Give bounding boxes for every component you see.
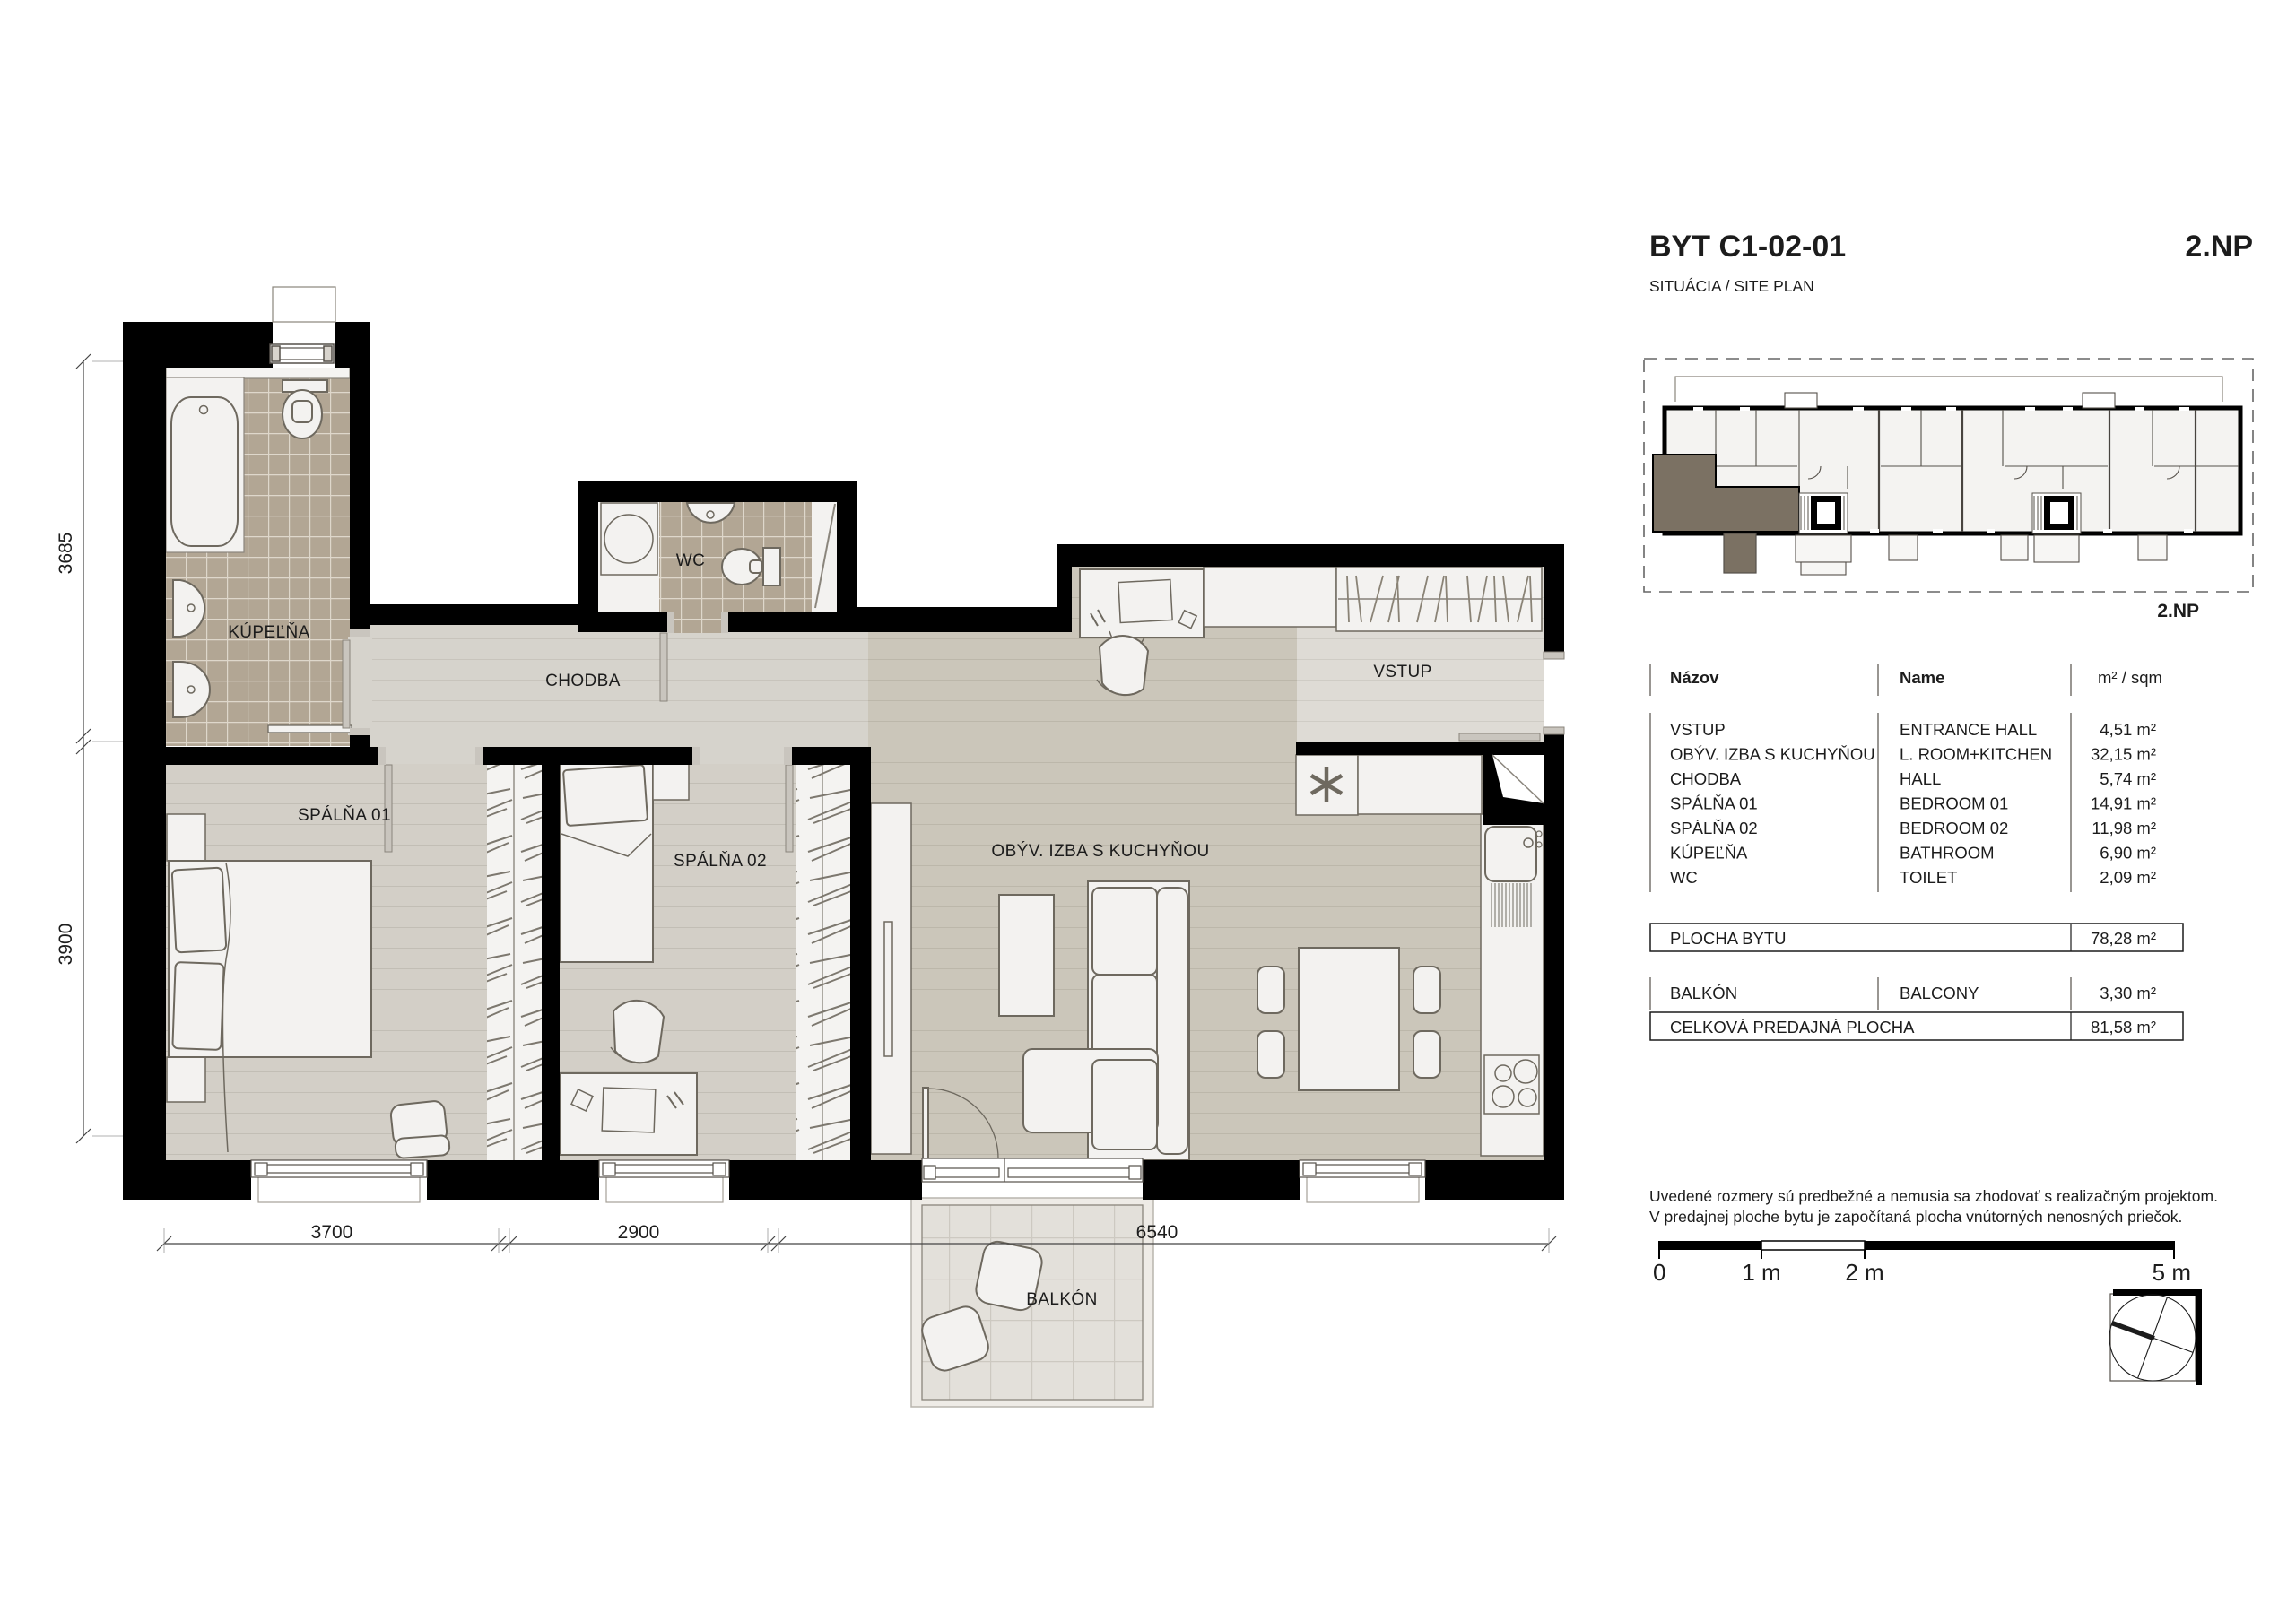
svg-text:SPÁLŇA 01: SPÁLŇA 01: [298, 805, 391, 825]
svg-text:PLOCHA BYTU: PLOCHA BYTU: [1670, 929, 1787, 948]
svg-text:BYT C1-02-01: BYT C1-02-01: [1649, 230, 1846, 264]
svg-text:3,30 m²: 3,30 m²: [2100, 984, 2156, 1002]
svg-text:VSTUP: VSTUP: [1373, 663, 1431, 681]
svg-text:81,58 m²: 81,58 m²: [2091, 1018, 2156, 1037]
svg-text:BEDROOM 02: BEDROOM 02: [1900, 819, 2008, 837]
svg-text:OBÝV. IZBA S KUCHYŇOU: OBÝV. IZBA S KUCHYŇOU: [991, 841, 1209, 861]
svg-text:78,28 m²: 78,28 m²: [2091, 929, 2156, 948]
svg-text:BALKÓN: BALKÓN: [1670, 984, 1737, 1002]
svg-text:2.NP: 2.NP: [2157, 601, 2199, 621]
svg-text:SITUÁCIA / SITE PLAN: SITUÁCIA / SITE PLAN: [1649, 277, 1814, 295]
svg-text:14,91 m²: 14,91 m²: [2091, 794, 2156, 813]
svg-text:1 m: 1 m: [1742, 1259, 1780, 1286]
svg-text:5 m: 5 m: [2152, 1259, 2191, 1286]
svg-text:OBÝV. IZBA S KUCHYŇOU: OBÝV. IZBA S KUCHYŇOU: [1670, 745, 1875, 764]
svg-text:0: 0: [1653, 1259, 1665, 1286]
svg-text:BALCONY: BALCONY: [1900, 984, 1979, 1002]
svg-text:SPÁLŇA 02: SPÁLŇA 02: [674, 851, 767, 871]
svg-text:L. ROOM+KITCHEN: L. ROOM+KITCHEN: [1900, 745, 2052, 764]
svg-text:WC: WC: [676, 551, 705, 570]
svg-text:6540: 6540: [1136, 1222, 1178, 1243]
svg-text:BALKÓN: BALKÓN: [1026, 1289, 1098, 1309]
svg-text:CHODBA: CHODBA: [1670, 769, 1742, 788]
svg-text:3685: 3685: [56, 533, 76, 575]
svg-text:KÚPEĽŇA: KÚPEĽŇA: [228, 622, 310, 642]
svg-text:4,51 m²: 4,51 m²: [2100, 720, 2156, 739]
svg-text:2.NP: 2.NP: [2185, 230, 2253, 264]
svg-text:32,15 m²: 32,15 m²: [2091, 745, 2156, 764]
svg-text:KÚPEĽŇA: KÚPEĽŇA: [1670, 844, 1748, 863]
svg-text:VSTUP: VSTUP: [1670, 720, 1726, 739]
svg-text:CELKOVÁ PREDAJNÁ PLOCHA: CELKOVÁ PREDAJNÁ PLOCHA: [1670, 1018, 1915, 1037]
svg-text:2,09 m²: 2,09 m²: [2100, 868, 2156, 887]
svg-text:ENTRANCE HALL: ENTRANCE HALL: [1900, 720, 2037, 739]
svg-text:2 m: 2 m: [1845, 1259, 1883, 1286]
svg-text:2900: 2900: [618, 1222, 660, 1243]
svg-text:SPÁLŇA 01: SPÁLŇA 01: [1670, 794, 1758, 813]
svg-text:6,90 m²: 6,90 m²: [2100, 844, 2156, 863]
svg-text:BATHROOM: BATHROOM: [1900, 844, 1995, 863]
svg-text:SPÁLŇA 02: SPÁLŇA 02: [1670, 819, 1758, 837]
svg-text:Name: Name: [1900, 668, 1944, 687]
svg-text:5,74 m²: 5,74 m²: [2100, 769, 2156, 788]
svg-text:BEDROOM 01: BEDROOM 01: [1900, 794, 2008, 813]
svg-text:Názov: Názov: [1670, 668, 1719, 687]
svg-text:WC: WC: [1670, 868, 1698, 887]
svg-text:3900: 3900: [56, 924, 76, 966]
svg-text:CHODBA: CHODBA: [545, 672, 621, 690]
svg-text:Uvedené rozmery sú predbežné a: Uvedené rozmery sú predbežné a nemusia s…: [1649, 1187, 2218, 1205]
svg-text:3700: 3700: [311, 1222, 353, 1243]
svg-text:11,98 m²: 11,98 m²: [2092, 819, 2156, 837]
svg-text:V predajnej ploche bytu je zap: V predajnej ploche bytu je započítaná pl…: [1649, 1208, 2182, 1226]
svg-text:TOILET: TOILET: [1900, 868, 1957, 887]
svg-text:HALL: HALL: [1900, 769, 1941, 788]
svg-text:m² / sqm: m² / sqm: [2098, 668, 2162, 687]
